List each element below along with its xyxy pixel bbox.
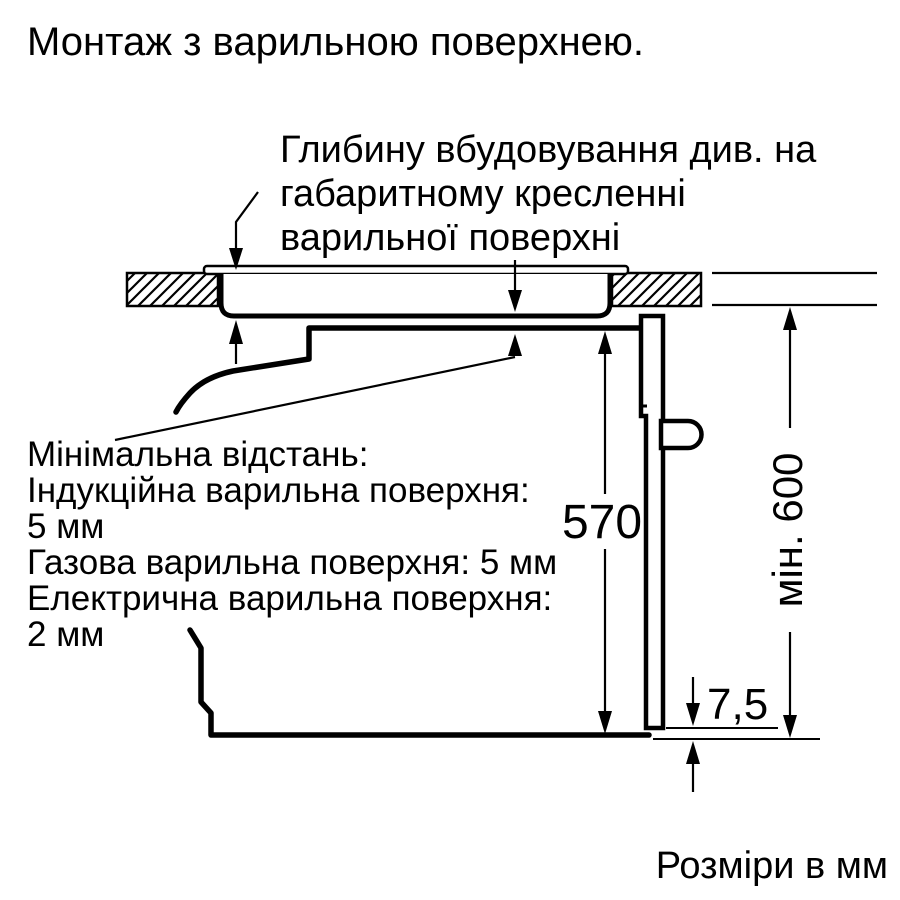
hob-tub-outline — [221, 274, 610, 316]
depth-note-line: габаритному кресленні — [280, 173, 686, 215]
hob-section — [204, 266, 628, 316]
installation-diagram: 570 мін. 600 7,5 Монтаж з варильною пове… — [0, 0, 900, 900]
dim-min600-label: мін. 600 — [764, 453, 811, 608]
oven-door-front — [641, 316, 663, 728]
depth-note-line: Глибину вбудовування див. на — [280, 129, 817, 171]
page-title: Монтаж з варильною поверхнею. — [27, 20, 644, 64]
oven-door-handle — [661, 421, 702, 448]
min-distance-note-line: Електрична варильна поверхня: — [27, 579, 552, 618]
min-distance-note-line: 5 мм — [27, 507, 104, 546]
min-distance-note-line: Газова варильна поверхня: 5 мм — [27, 543, 557, 582]
installation-drawing-page: 570 мін. 600 7,5 Монтаж з варильною пове… — [0, 0, 900, 900]
dim-7-5-label: 7,5 — [707, 680, 768, 729]
units-label: Розміри в мм — [656, 845, 888, 887]
min-distance-note-line: 2 мм — [27, 615, 104, 654]
worktop-hatched-block-left — [127, 273, 218, 306]
min-distance-note-line: Індукційна варильна поверхня: — [27, 471, 530, 510]
worktop-hatched-block-right — [612, 273, 701, 306]
min-distance-note-line: Мінімальна відстань: — [27, 435, 368, 474]
depth-note-line: варильної поверхні — [280, 217, 620, 259]
dim-570-label: 570 — [562, 496, 642, 549]
hob-top-flange — [204, 266, 628, 274]
